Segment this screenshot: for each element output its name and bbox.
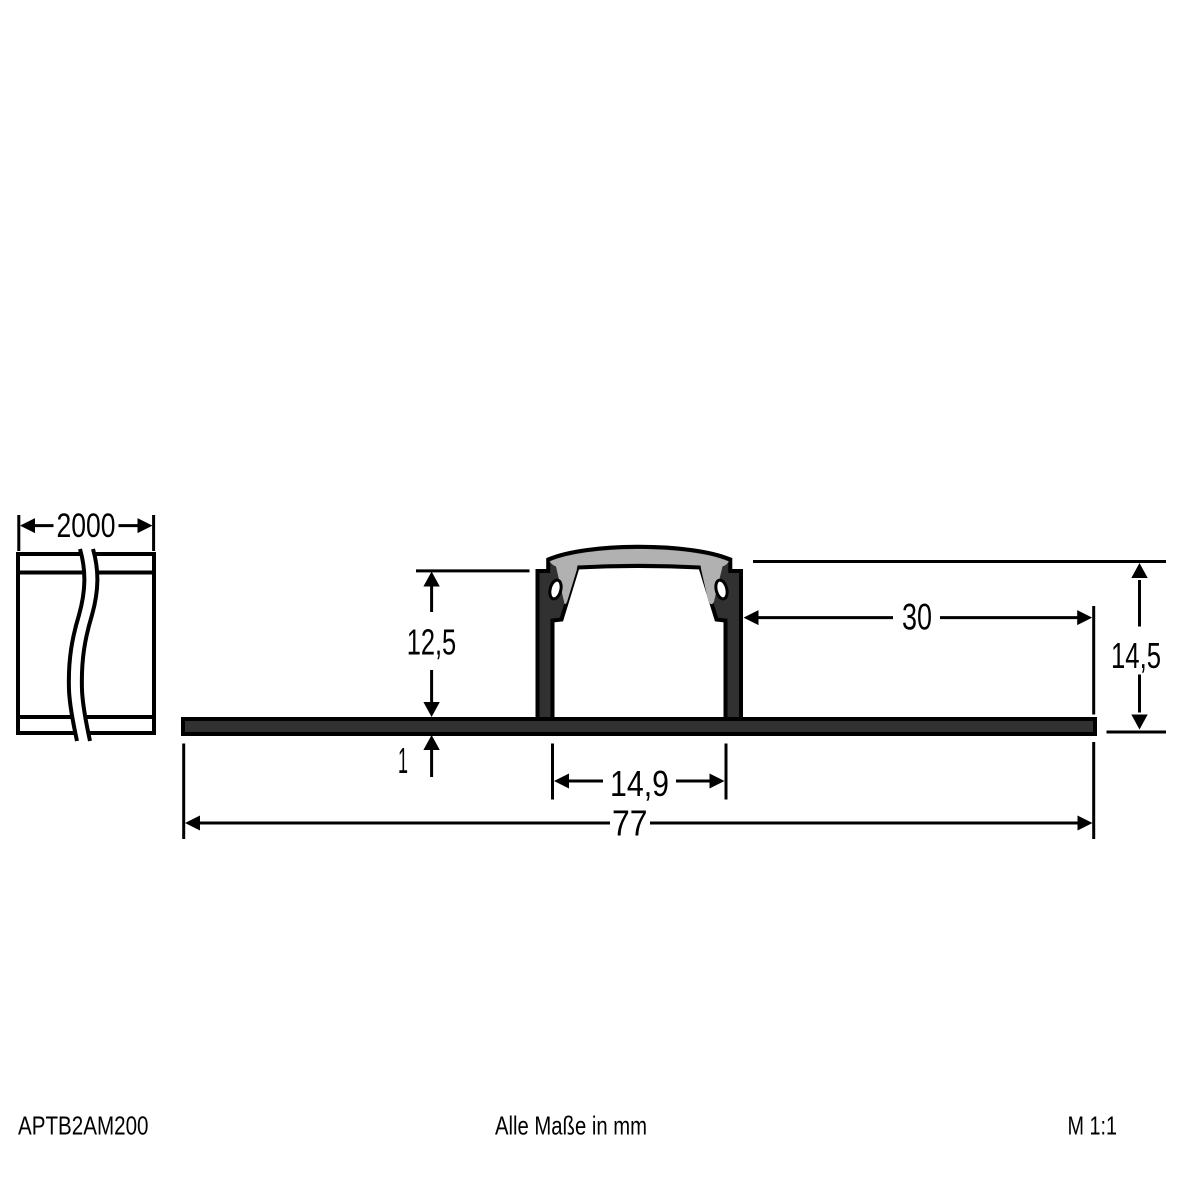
svg-text:14,5: 14,5 bbox=[1111, 635, 1161, 676]
svg-text:M 1:1: M 1:1 bbox=[1068, 1111, 1118, 1141]
svg-text:12,5: 12,5 bbox=[407, 622, 457, 663]
svg-text:2000: 2000 bbox=[57, 507, 116, 545]
svg-text:Alle Maße in mm: Alle Maße in mm bbox=[495, 1111, 647, 1141]
svg-text:77: 77 bbox=[612, 803, 648, 844]
svg-text:30: 30 bbox=[902, 596, 932, 638]
svg-text:14,9: 14,9 bbox=[610, 763, 669, 804]
svg-text:1: 1 bbox=[398, 740, 408, 781]
svg-text:APTB2AM200: APTB2AM200 bbox=[18, 1111, 149, 1141]
